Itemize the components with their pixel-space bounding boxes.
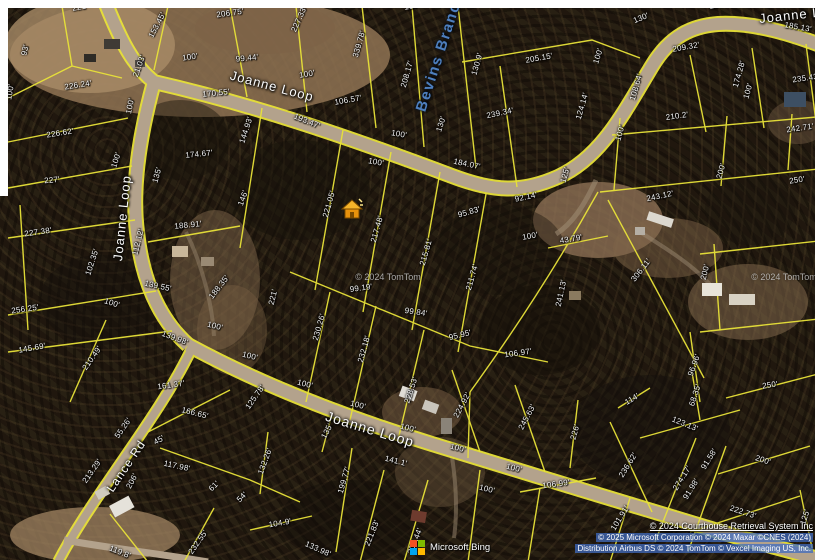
house-marker-icon [340, 198, 364, 222]
terrain-patches [5, 0, 825, 560]
map-viewport[interactable]: 221'93'226.24'100'226.62'227'227.38'256.… [0, 0, 825, 560]
bing-logo[interactable]: Microsoft Bing [410, 540, 490, 555]
parcel-overlay [0, 0, 825, 560]
satellite-map[interactable]: 221'93'226.24'100'226.62'227'227.38'256.… [0, 0, 825, 560]
map-border-right [815, 0, 825, 560]
map-border-left [0, 0, 8, 196]
bing-logo-label: Microsoft Bing [430, 542, 490, 553]
imagery-attribution-line: Distribution Airbus DS © 2024 TomTom © V… [575, 544, 813, 553]
map-attribution: © 2024 Courthouse Retrieval System Inc ©… [575, 521, 813, 554]
subject-property-marker[interactable] [340, 198, 364, 222]
imagery-attribution-line: © 2025 Microsoft Corporation © 2024 Maxa… [596, 533, 813, 542]
crs-attribution-link[interactable]: © 2024 Courthouse Retrieval System Inc [575, 521, 813, 531]
map-border-top [0, 0, 825, 8]
microsoft-logo-icon [410, 540, 425, 555]
